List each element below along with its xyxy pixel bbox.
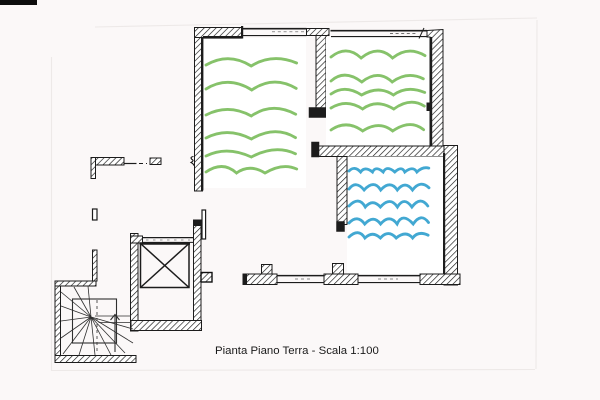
svg-text:Pianta Piano Terra - Scala 1:1: Pianta Piano Terra - Scala 1:100 bbox=[215, 345, 379, 357]
